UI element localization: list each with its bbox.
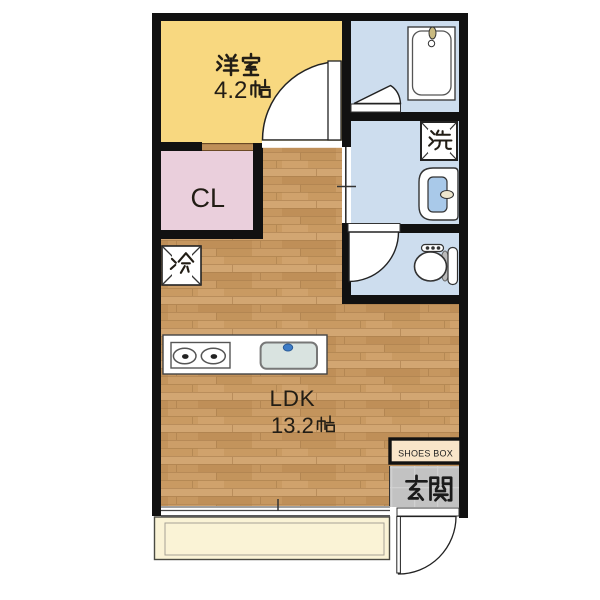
svg-text:13.2: 13.2 [271, 413, 314, 438]
svg-text:LDK: LDK [270, 386, 316, 411]
svg-text:SHOES BOX: SHOES BOX [398, 449, 453, 459]
svg-text:CL: CL [191, 183, 226, 213]
svg-text:4.2: 4.2 [214, 77, 247, 104]
